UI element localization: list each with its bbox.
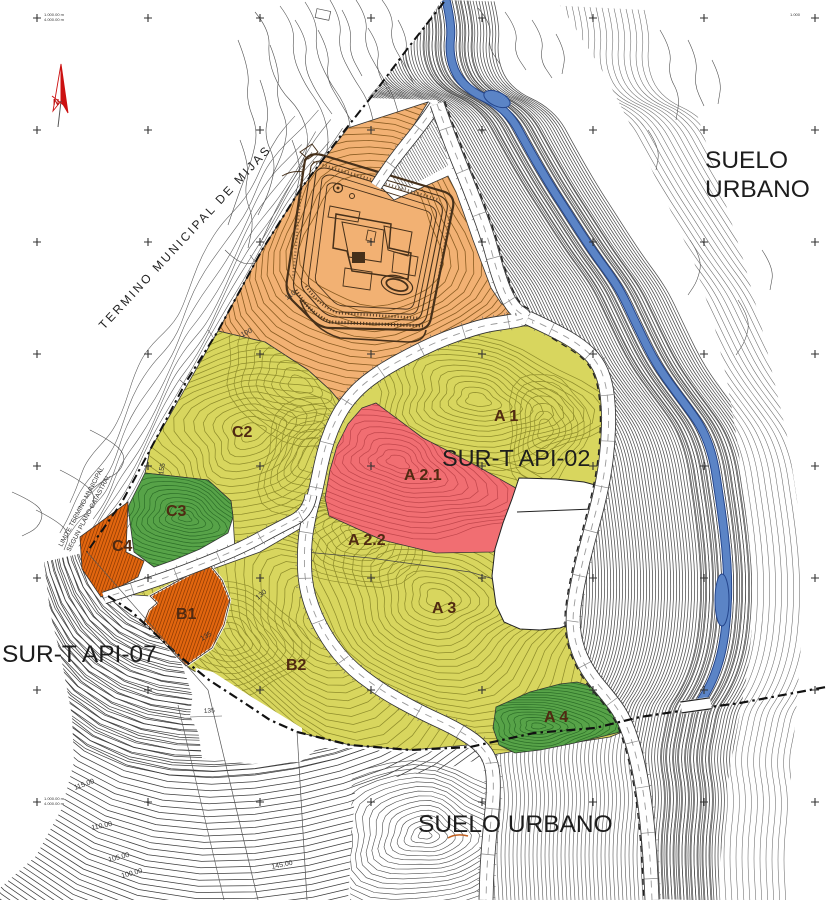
svg-text:B1: B1 [176,606,197,623]
svg-text:A 3: A 3 [432,600,456,617]
svg-text:SUR-T API-07: SUR-T API-07 [2,641,157,668]
svg-text:1.000: 1.000 [790,12,801,17]
svg-text:A 2.2: A 2.2 [348,532,386,549]
svg-text:C4: C4 [112,538,133,555]
svg-text:SUR-T API-02: SUR-T API-02 [442,445,590,471]
svg-text:A 2.1: A 2.1 [404,467,442,484]
svg-text:URBANO: URBANO [705,176,810,203]
svg-text:A 1: A 1 [494,408,518,425]
svg-text:135: 135 [204,707,216,715]
svg-text:A 4: A 4 [544,709,568,726]
svg-text:SUELO: SUELO [705,147,788,174]
svg-text:N: N [53,97,59,107]
svg-text:C2: C2 [232,424,253,441]
svg-text:C3: C3 [166,503,187,520]
svg-text:SUELO URBANO: SUELO URBANO [418,811,613,838]
svg-text:4.000.00 m: 4.000.00 m [44,17,65,22]
svg-text:4.000.00 m: 4.000.00 m [44,801,65,806]
svg-text:B2: B2 [286,657,307,674]
